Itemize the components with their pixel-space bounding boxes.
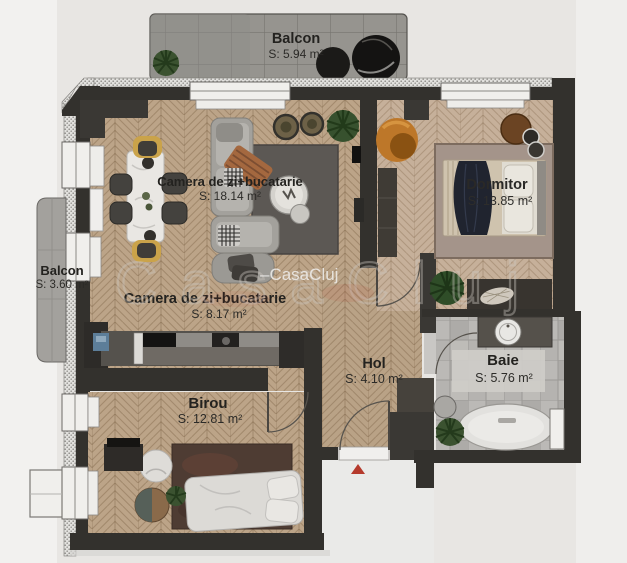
svg-text:S: 5.94 m²: S: 5.94 m² <box>268 47 323 61</box>
svg-text:Birou: Birou <box>188 395 227 412</box>
svg-text:Camera de zi+bucatarie: Camera de zi+bucatarie <box>157 174 303 189</box>
svg-text:Balcon: Balcon <box>272 31 320 47</box>
svg-text:S: 13.85 m²: S: 13.85 m² <box>468 194 533 208</box>
svg-text:S: 5.76 m²: S: 5.76 m² <box>475 371 533 385</box>
svg-text:Balcon: Balcon <box>40 263 83 278</box>
svg-text:Hol: Hol <box>362 356 385 372</box>
svg-text:–CasaCluj: –CasaCluj <box>260 265 338 284</box>
svg-text:Baie: Baie <box>487 352 519 369</box>
svg-text:S: 3.60 m²: S: 3.60 m² <box>35 279 88 291</box>
svg-text:S: 4.10 m²: S: 4.10 m² <box>345 372 403 386</box>
svg-text:Dormitor: Dormitor <box>466 177 528 193</box>
svg-text:S: 18.14 m²: S: 18.14 m² <box>199 189 261 203</box>
svg-text:S: 12.81 m²: S: 12.81 m² <box>178 412 243 426</box>
